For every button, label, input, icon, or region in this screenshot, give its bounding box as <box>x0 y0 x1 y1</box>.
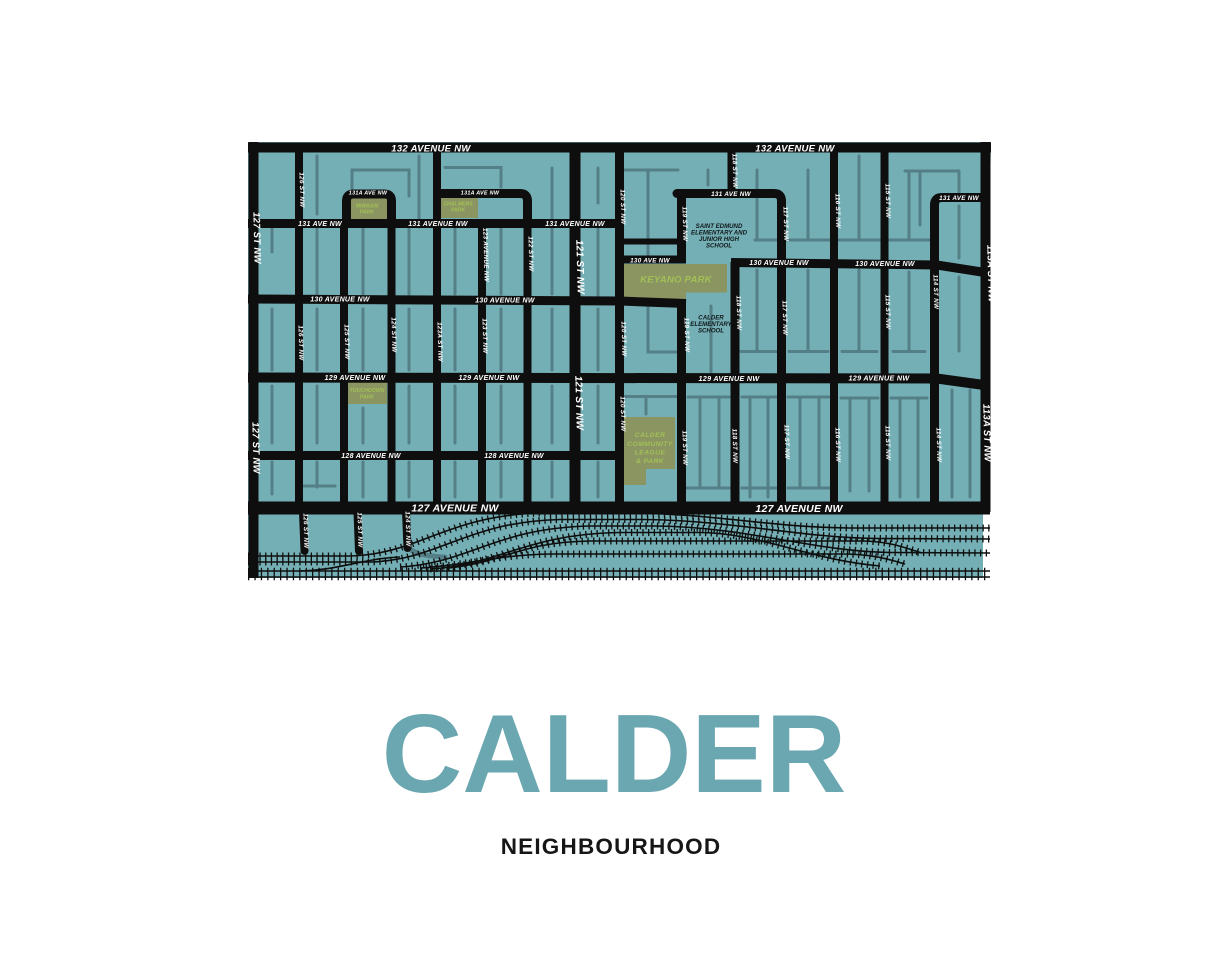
svg-text:NEIGHBOURHOOD: NEIGHBOURHOOD <box>501 834 722 859</box>
svg-text:129 AVENUE NW: 129 AVENUE NW <box>848 374 910 383</box>
svg-text:TOUCHDOWN: TOUCHDOWN <box>350 388 385 394</box>
svg-text:119 ST NW: 119 ST NW <box>681 430 689 466</box>
svg-text:LEAGUE: LEAGUE <box>635 450 666 457</box>
svg-text:119 ST NW: 119 ST NW <box>681 206 689 242</box>
svg-text:128 AVENUE NW: 128 AVENUE NW <box>484 453 545 460</box>
svg-text:SCHOOL: SCHOOL <box>706 243 732 250</box>
svg-text:129 AVENUE NW: 129 AVENUE NW <box>324 373 386 382</box>
svg-text:118 ST NW: 118 ST NW <box>735 295 743 331</box>
svg-text:122 ST NW: 122 ST NW <box>527 236 535 272</box>
svg-text:KEYANO PARK: KEYANO PARK <box>640 275 713 286</box>
svg-text:PARK: PARK <box>360 210 376 216</box>
svg-text:114 ST NW: 114 ST NW <box>935 427 943 463</box>
svg-text:129 AVENUE NW: 129 AVENUE NW <box>458 373 520 382</box>
svg-text:131A AVE NW: 131A AVE NW <box>461 191 500 197</box>
svg-text:119 ST NW: 119 ST NW <box>683 317 691 353</box>
svg-text:131A AVE NW: 131A AVE NW <box>349 191 388 197</box>
svg-text:121 ST NW: 121 ST NW <box>573 240 585 296</box>
svg-text:123 AVENUE NW: 123 AVENUE NW <box>481 228 489 283</box>
svg-text:COMMUNITY: COMMUNITY <box>627 441 674 448</box>
svg-text:120 ST NW: 120 ST NW <box>619 189 627 225</box>
svg-text:130 AVENUE NW: 130 AVENUE NW <box>855 261 916 268</box>
svg-text:125 ST NW: 125 ST NW <box>356 512 364 548</box>
svg-text:116 ST NW: 116 ST NW <box>834 193 842 229</box>
svg-text:126 ST NW: 126 ST NW <box>298 172 306 208</box>
svg-text:117 ST NW: 117 ST NW <box>782 206 790 242</box>
svg-text:CALDER: CALDER <box>382 691 847 816</box>
svg-text:& PARK: & PARK <box>636 458 665 465</box>
svg-text:127 AVENUE NW: 127 AVENUE NW <box>755 503 843 515</box>
svg-text:SCHOOL: SCHOOL <box>698 328 724 335</box>
svg-text:114 ST NW: 114 ST NW <box>932 274 940 310</box>
svg-text:118 ST NW: 118 ST NW <box>731 428 739 464</box>
svg-text:130 AVE NW: 130 AVE NW <box>630 258 670 265</box>
svg-text:124 ST NW: 124 ST NW <box>390 317 398 353</box>
svg-text:131 AVE NW: 131 AVE NW <box>939 195 979 202</box>
svg-text:131 AVENUE NW: 131 AVENUE NW <box>545 221 606 228</box>
svg-text:120 ST NW: 120 ST NW <box>620 321 628 357</box>
svg-text:120 ST NW: 120 ST NW <box>619 396 627 432</box>
svg-text:123 ST NW: 123 ST NW <box>481 318 489 354</box>
svg-text:CALDER: CALDER <box>635 432 666 439</box>
svg-text:118 ST NW: 118 ST NW <box>731 153 739 189</box>
svg-text:113A ST NW: 113A ST NW <box>984 245 997 304</box>
svg-text:127 ST NW: 127 ST NW <box>249 422 261 475</box>
svg-text:115 ST NW: 115 ST NW <box>884 183 892 219</box>
svg-text:128 AVENUE NW: 128 AVENUE NW <box>341 453 402 460</box>
svg-text:127 ST NW: 127 ST NW <box>250 212 262 265</box>
svg-text:126 ST NW: 126 ST NW <box>297 325 305 361</box>
svg-text:117 ST NW: 117 ST NW <box>783 424 791 460</box>
svg-text:130 AVENUE NW: 130 AVENUE NW <box>310 297 371 304</box>
svg-text:PARK: PARK <box>360 395 376 401</box>
svg-text:129 AVENUE NW: 129 AVENUE NW <box>698 374 760 383</box>
svg-text:130 AVENUE NW: 130 AVENUE NW <box>749 260 810 267</box>
svg-text:132 AVENUE NW: 132 AVENUE NW <box>755 144 835 155</box>
svg-text:113A ST NW: 113A ST NW <box>980 404 993 463</box>
svg-text:115 ST NW: 115 ST NW <box>884 425 892 461</box>
svg-text:125 ST NW: 125 ST NW <box>343 324 351 360</box>
svg-text:130 AVENUE NW: 130 AVENUE NW <box>475 298 536 305</box>
svg-text:124 ST NW: 124 ST NW <box>404 511 412 547</box>
svg-text:116 ST NW: 116 ST NW <box>834 427 842 463</box>
svg-text:126 ST NW: 126 ST NW <box>302 513 310 549</box>
svg-text:PARK: PARK <box>451 208 467 214</box>
svg-text:117 ST NW: 117 ST NW <box>781 300 789 336</box>
svg-text:131 AVE NW: 131 AVE NW <box>711 191 751 198</box>
svg-text:121 ST NW: 121 ST NW <box>572 376 584 432</box>
svg-text:123A ST NW: 123A ST NW <box>435 322 443 363</box>
svg-text:131 AVENUE NW: 131 AVENUE NW <box>408 221 469 228</box>
svg-text:127 AVENUE NW: 127 AVENUE NW <box>411 503 499 515</box>
svg-text:131 AVE NW: 131 AVE NW <box>298 221 343 228</box>
svg-text:115 ST NW: 115 ST NW <box>884 294 892 330</box>
svg-text:132 AVENUE NW: 132 AVENUE NW <box>391 144 471 155</box>
